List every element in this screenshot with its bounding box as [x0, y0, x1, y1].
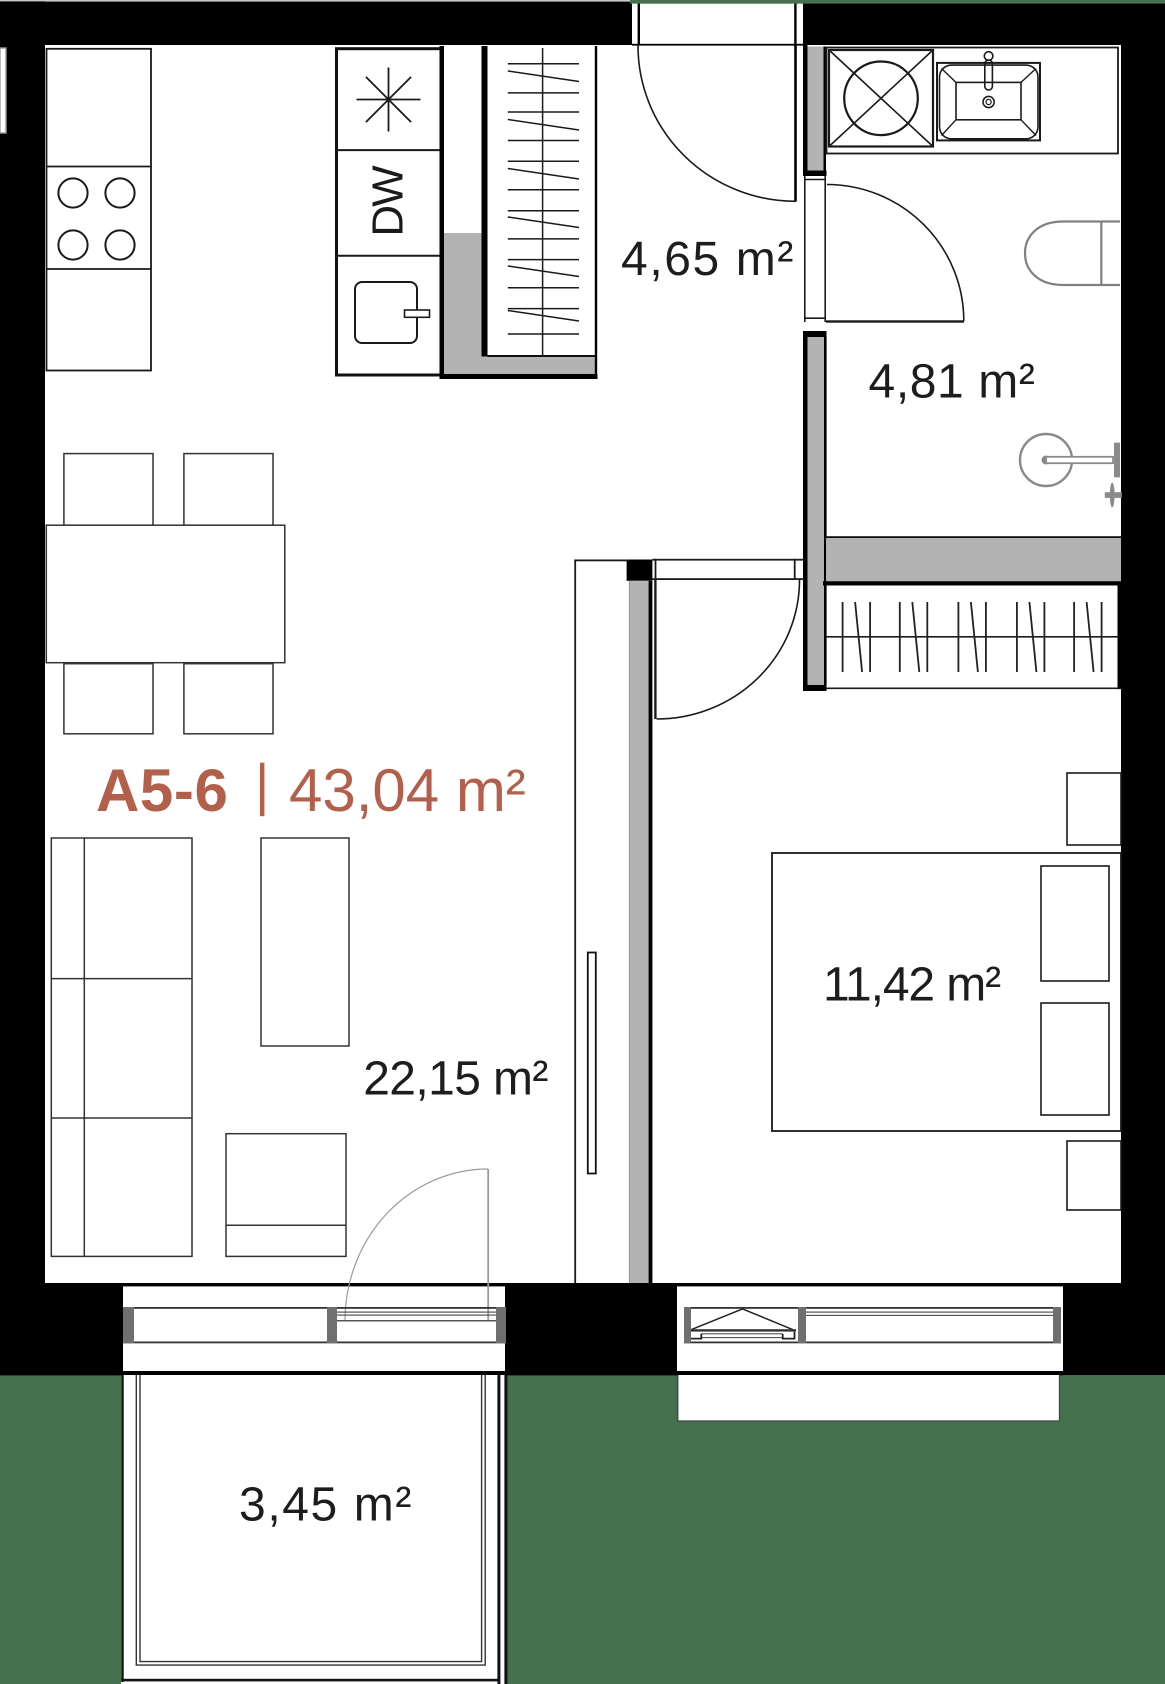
- svg-text:DW: DW: [364, 165, 413, 237]
- svg-text:4,65 m²: 4,65 m²: [621, 233, 795, 286]
- svg-text:4,81 m²: 4,81 m²: [869, 356, 1036, 409]
- svg-text:11,42 m²: 11,42 m²: [823, 959, 1001, 1012]
- svg-text:3,45 m²: 3,45 m²: [239, 1479, 413, 1532]
- svg-text:A5-6: A5-6: [96, 757, 228, 824]
- svg-text:22,15 m²: 22,15 m²: [363, 1053, 548, 1106]
- svg-text:43,04 m²: 43,04 m²: [289, 757, 526, 824]
